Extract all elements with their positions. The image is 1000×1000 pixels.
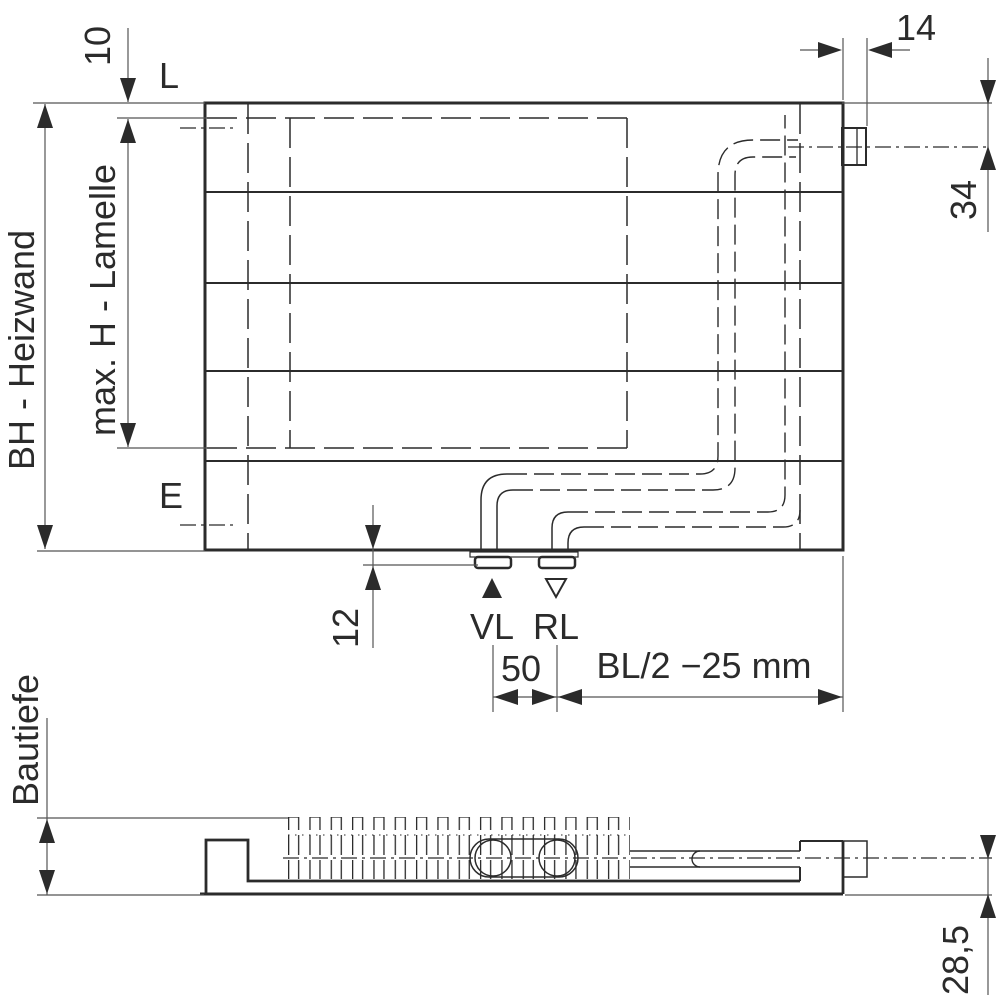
convector-fins: [288, 817, 630, 879]
side-connector-stub: [843, 841, 867, 877]
dim-top-offset: 10: [77, 26, 207, 118]
return-flow-icon: [546, 579, 566, 597]
connection-position-value: BL/2 −25 mm: [596, 645, 811, 686]
supply-pipe: [481, 140, 798, 550]
lamella-lines: [205, 192, 843, 461]
return-label: RL: [533, 606, 579, 647]
side-connector-block: [800, 841, 867, 894]
radiator-body-outline: [205, 103, 843, 550]
front-view: VL RL L E BH - Heizwand 10 max: [1, 7, 996, 712]
connector-offset-value: 34: [943, 180, 984, 220]
depth-label: Bautiefe: [5, 674, 46, 806]
supply-label: VL: [470, 606, 514, 647]
supply-flow-icon: [482, 578, 502, 598]
side-view: Bautiefe 28,5: [5, 674, 996, 995]
dim-connector-width: 14: [800, 7, 936, 126]
return-pipe: [552, 115, 800, 550]
bottom-offset-value: 12: [325, 608, 366, 648]
connection-spacing-value: 50: [501, 648, 541, 689]
radiator-dimension-drawing: VL RL L E BH - Heizwand 10 max: [0, 0, 1000, 1000]
hidden-edge-lines: [180, 104, 800, 549]
pipe-end-cap: [692, 851, 700, 867]
dim-lamella-height: max. H - Lamelle: [82, 119, 207, 448]
bottom-connectors: VL RL: [470, 552, 579, 647]
return-stub: [539, 557, 575, 568]
supply-stub: [475, 557, 511, 568]
lamella-height-label: max. H - Lamelle: [82, 164, 123, 436]
technical-drawing-page: VL RL L E BH - Heizwand 10 max: [0, 0, 1000, 1000]
dim-depth: Bautiefe: [5, 674, 288, 895]
side-connector-front: [788, 128, 990, 165]
label-l: L: [159, 55, 179, 96]
dim-bottom-offset: 12: [325, 505, 478, 648]
connector-width-value: 14: [896, 7, 936, 48]
connector-height-value: 28,5: [935, 925, 976, 995]
build-height-label: BH - Heizwand: [1, 230, 42, 470]
top-offset-value: 10: [77, 26, 118, 66]
label-e: E: [159, 475, 183, 516]
